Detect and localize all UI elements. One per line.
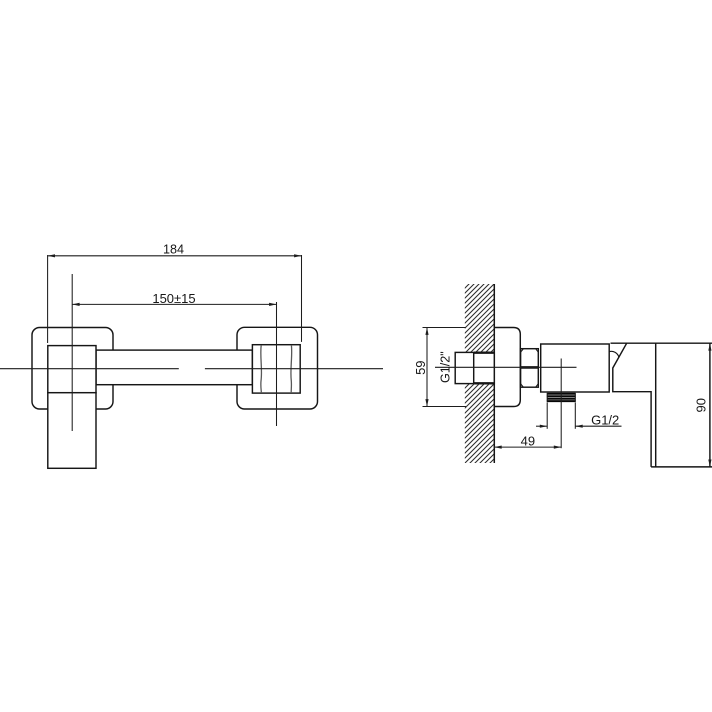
svg-text:90: 90: [694, 398, 709, 412]
svg-text:G1/2: G1/2: [591, 413, 619, 428]
svg-text:184: 184: [163, 242, 184, 256]
svg-text:49: 49: [521, 433, 535, 448]
svg-text:59: 59: [413, 360, 428, 374]
svg-text:G1/2": G1/2": [438, 351, 452, 383]
svg-text:150±15: 150±15: [152, 291, 195, 306]
